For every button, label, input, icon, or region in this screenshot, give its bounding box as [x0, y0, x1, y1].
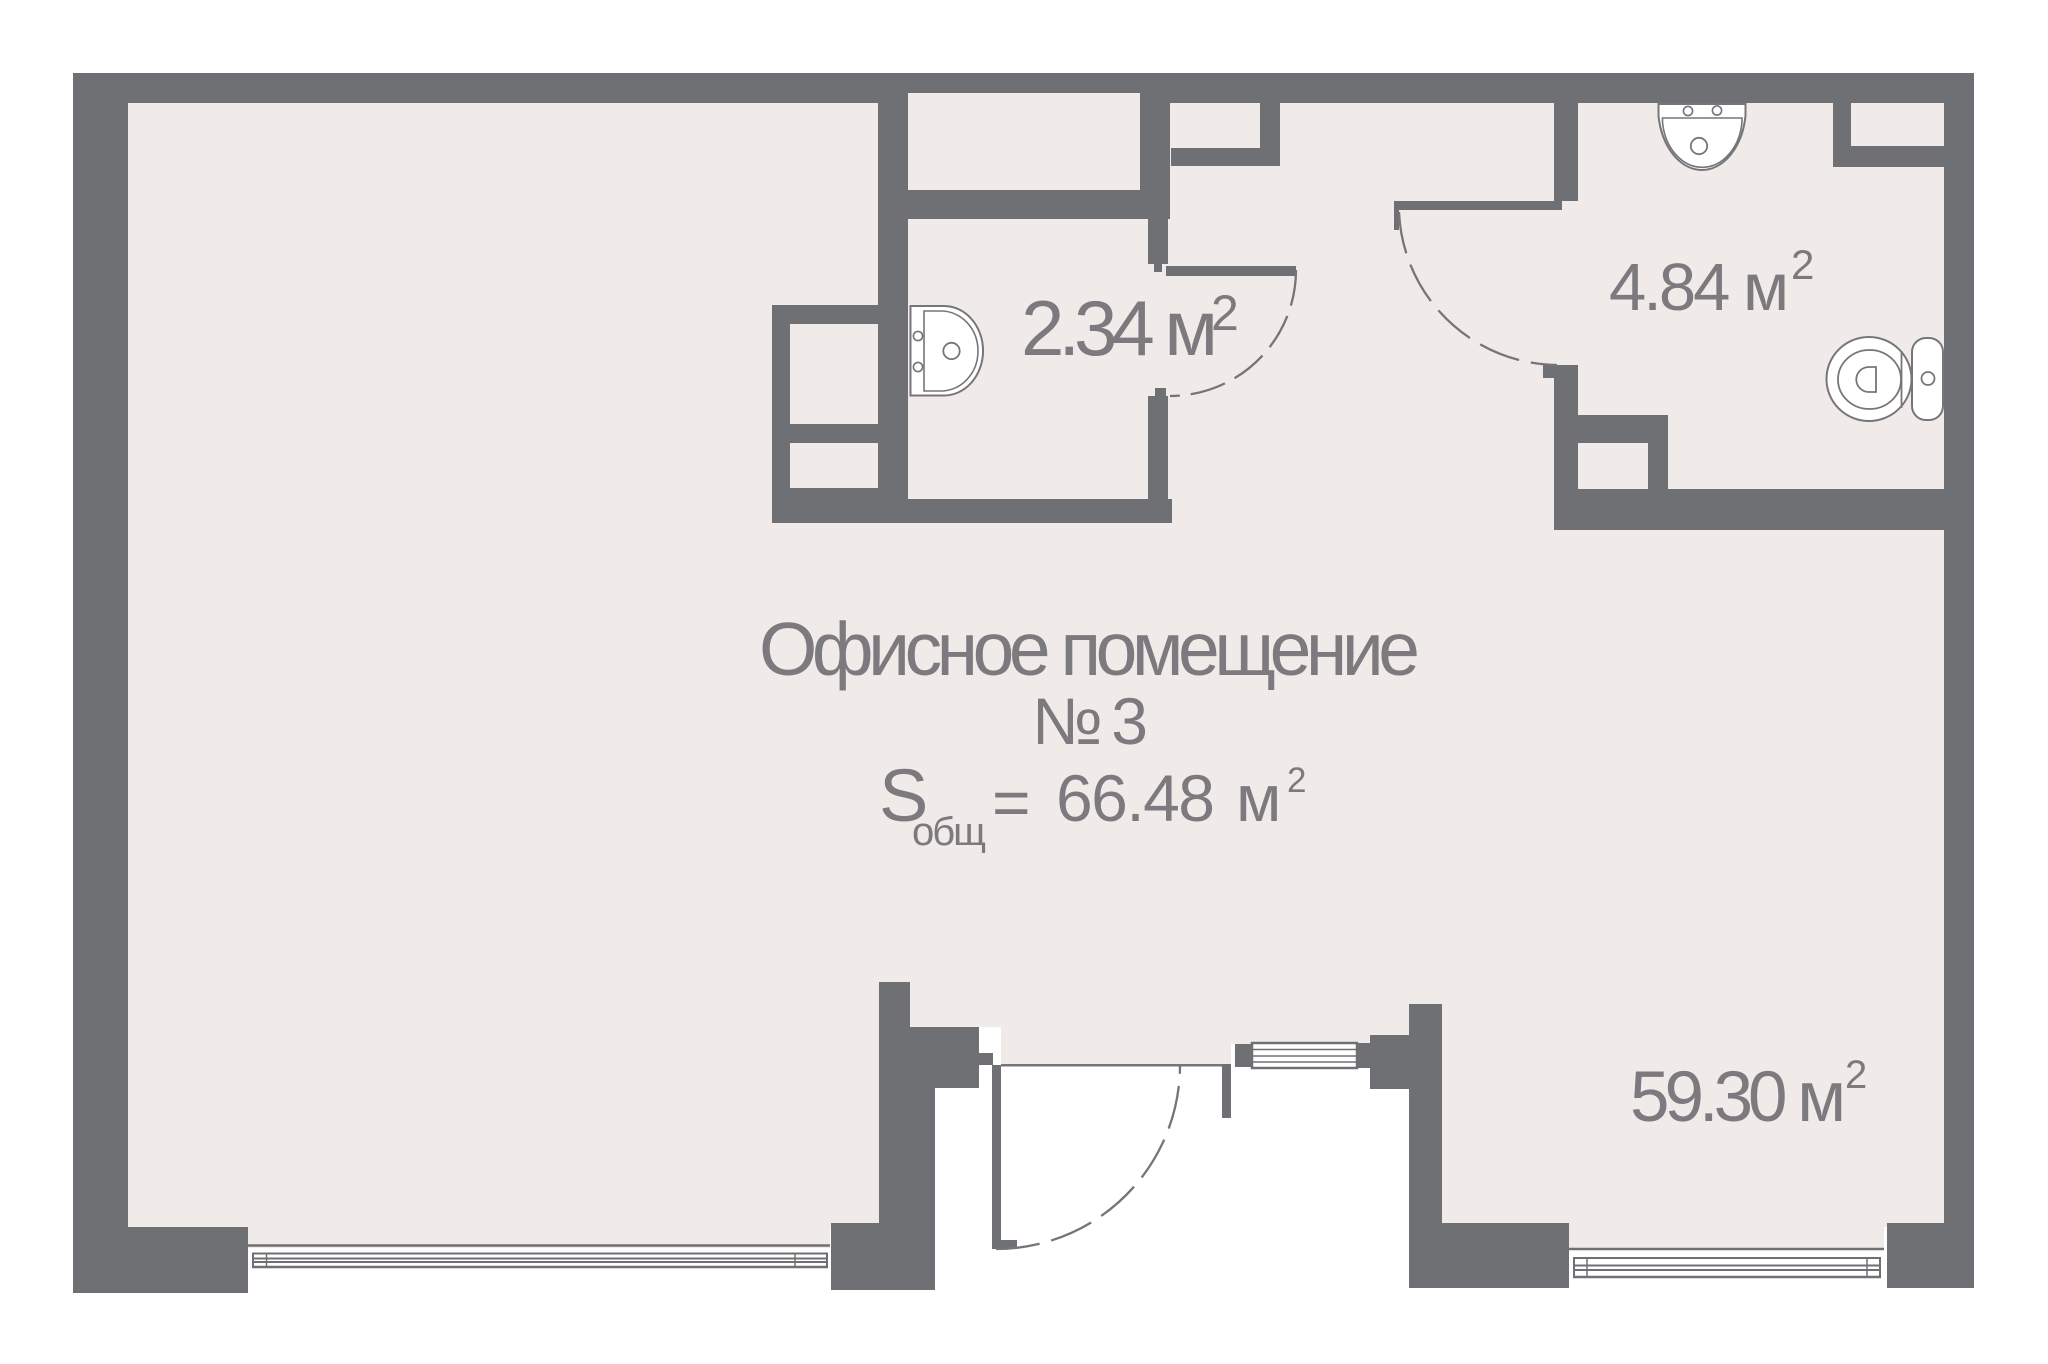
svg-text:2: 2	[1211, 285, 1239, 341]
svg-text:59.30 м: 59.30 м	[1630, 1058, 1846, 1137]
svg-text:4.84 м: 4.84 м	[1609, 250, 1789, 325]
svg-text:2.34 м: 2.34 м	[1021, 284, 1218, 372]
svg-text:м: м	[1236, 761, 1281, 835]
svg-text:общ: общ	[912, 810, 986, 854]
svg-text:2: 2	[1287, 761, 1306, 800]
svg-text:=: =	[992, 765, 1031, 839]
svg-text:Офисное помещение: Офисное помещение	[759, 607, 1420, 691]
svg-text:2: 2	[1791, 241, 1814, 288]
svg-text:2: 2	[1845, 1053, 1867, 1097]
svg-text:№ 3: № 3	[1032, 684, 1148, 758]
svg-text:66.48: 66.48	[1056, 761, 1215, 835]
